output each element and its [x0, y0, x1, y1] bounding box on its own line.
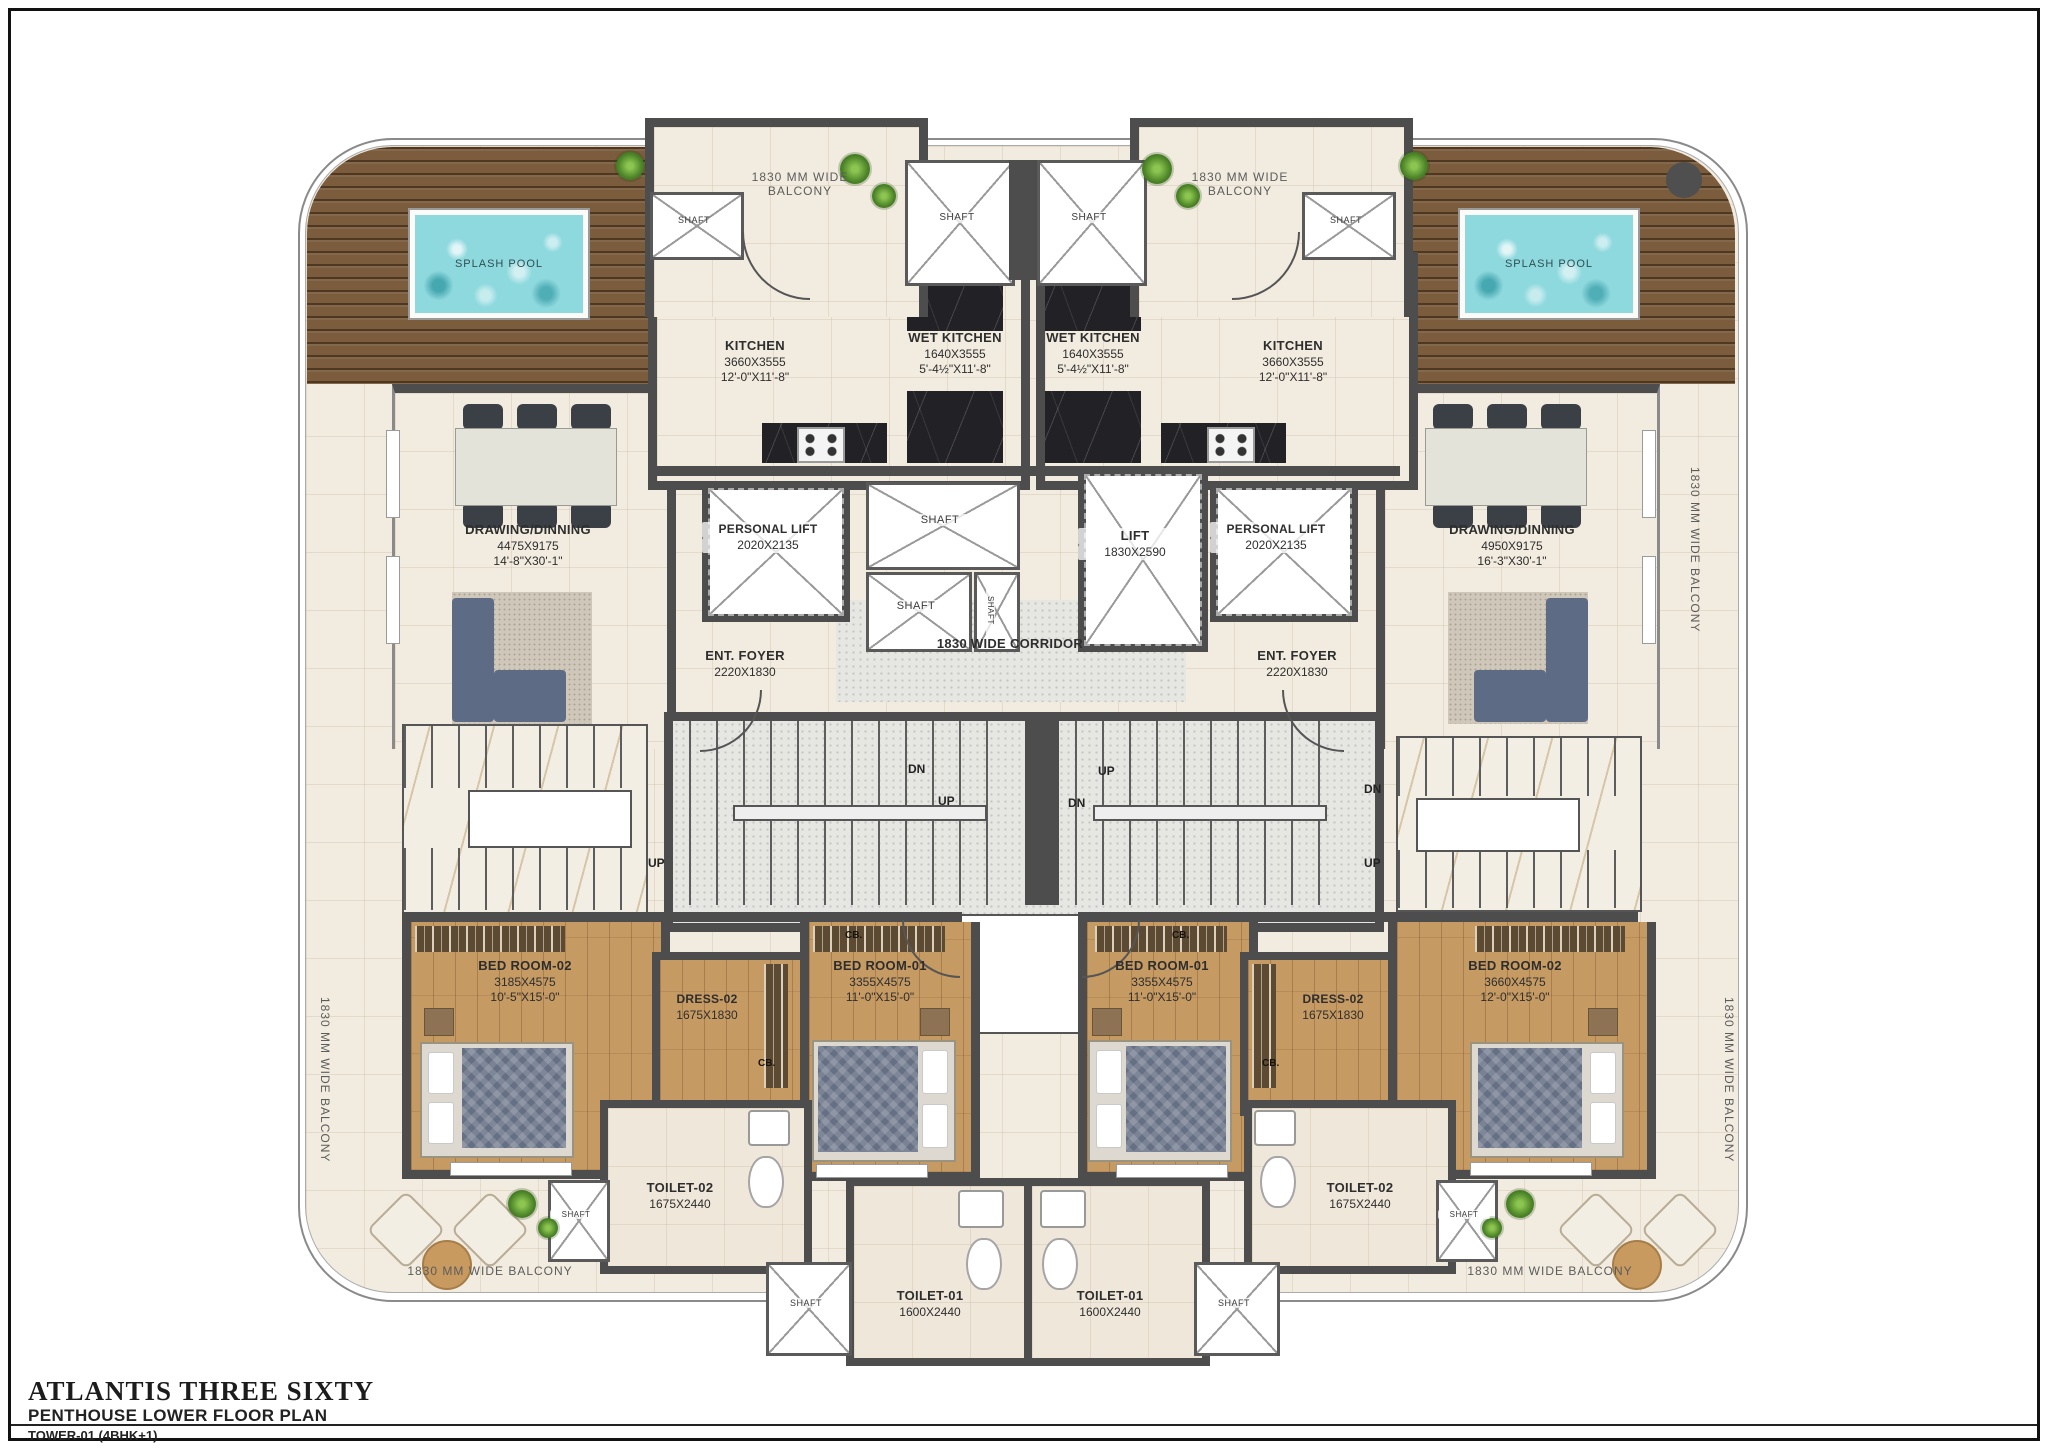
- shaft-side-right-label: SHAFT: [1438, 1210, 1490, 1219]
- nightstand: [1092, 1008, 1122, 1036]
- bed-double: [812, 1040, 956, 1162]
- kitchen-left-label: KITCHEN 3660X3555 12'-0"X11'-8": [660, 338, 850, 386]
- duvet: [818, 1046, 918, 1152]
- room-name: PERSONAL LIFT: [1210, 522, 1342, 538]
- shaft-core-top-right-label: SHAFT: [1047, 212, 1131, 223]
- room-name: TOILET-02: [1290, 1180, 1430, 1197]
- deck-drain-circle: [1666, 162, 1702, 198]
- room-dim-ft: 12'-0"X11'-8": [1198, 370, 1388, 386]
- sofa-left-horizontal: [494, 670, 566, 722]
- room-name: DRESS-02: [642, 992, 772, 1008]
- room-dim-mm: 2020X2135: [702, 538, 834, 554]
- window-bed1-right: [1116, 1164, 1228, 1178]
- title-divider: [11, 1424, 2037, 1426]
- stair-landing: [468, 790, 632, 848]
- bedroom-01-left-label: BED ROOM-01 3355X4575 11'-0"X15'-0": [790, 958, 970, 1006]
- wet-kitchen-right-label: WET KITCHEN 1640X3555 5'-4½"X11'-8": [1018, 330, 1168, 378]
- balcony-right-upper-label: 1830 MM WIDE BALCONY: [1672, 400, 1702, 700]
- room-name: BED ROOM-01: [1072, 958, 1252, 975]
- shaft-mid-left-a: [866, 482, 1020, 570]
- room-name: TOILET-01: [855, 1288, 1005, 1305]
- dining-chair: [1487, 404, 1527, 430]
- shaft-side-left: [548, 1180, 610, 1262]
- pillow: [428, 1052, 454, 1094]
- bedroom-02-left-label: BED ROOM-02 3185X4575 10'-5"X15'-0": [425, 958, 625, 1006]
- bedroom-01-right-label: BED ROOM-01 3355X4575 11'-0"X15'-0": [1072, 958, 1252, 1006]
- private-stair-right-dn: DN: [1364, 782, 1381, 796]
- wardrobe: [415, 926, 565, 952]
- wardrobe: [1475, 926, 1625, 952]
- splash-pool-left-label: SPLASH POOL: [455, 258, 543, 270]
- tower-name: TOWER-01 (4BHK+1): [28, 1428, 157, 1443]
- foyer-left-label: ENT. FOYER 2220X1830: [660, 648, 830, 680]
- room-dim-mm: 1600X2440: [1035, 1305, 1185, 1321]
- balcony-right-lower-label: 1830 MM WIDE BALCONY: [1706, 930, 1736, 1230]
- bed-double: [1470, 1042, 1624, 1158]
- room-name: WET KITCHEN: [880, 330, 1030, 347]
- dining-chair: [1433, 404, 1473, 430]
- washbasin-icon: [1040, 1190, 1086, 1228]
- shaft-mid-left-b-label: SHAFT: [876, 600, 956, 612]
- room-name: LIFT: [1078, 528, 1192, 545]
- dining-table-left: [455, 428, 617, 506]
- room-dim-mm: 1600X2440: [855, 1305, 1005, 1321]
- pillow: [922, 1050, 948, 1094]
- room-dim-mm: 4950X9175: [1412, 539, 1612, 555]
- dining-table-right: [1425, 428, 1587, 506]
- toilet-01-right-label: TOILET-01 1600X2440: [1035, 1288, 1185, 1320]
- toilet-01-left-label: TOILET-01 1600X2440: [855, 1288, 1005, 1320]
- shaft-core-top-left-label: SHAFT: [915, 212, 999, 223]
- duvet: [1478, 1048, 1582, 1148]
- room-dim-mm: 3660X3555: [660, 355, 850, 371]
- room-dim-mm: 1640X3555: [1018, 347, 1168, 363]
- balcony-bottom-left-label: 1830 MM WIDE BALCONY: [340, 1264, 640, 1278]
- drawing-right-label: DRAWING/DINNING 4950X9175 16'-3"X30'-1": [1412, 522, 1612, 570]
- room-dim-mm: 3355X4575: [1072, 975, 1252, 991]
- nightstand: [1588, 1008, 1618, 1036]
- bedroom-02-right-label: BED ROOM-02 3660X4575 12'-0"X15'-0": [1415, 958, 1615, 1006]
- toilet-02-right-label: TOILET-02 1675X2440: [1290, 1180, 1430, 1212]
- stair-hall: [664, 712, 1384, 932]
- project-title: ATLANTIS THREE SIXTY: [28, 1376, 374, 1407]
- room-dim-ft: 5'-4½"X11'-8": [880, 362, 1030, 378]
- pillow: [1096, 1104, 1122, 1148]
- washbasin-icon: [748, 1110, 790, 1146]
- room-name: KITCHEN: [1198, 338, 1388, 355]
- wc-icon: [966, 1238, 1002, 1290]
- plant-icon: [1482, 1218, 1502, 1238]
- room-dim-mm: 1830X2590: [1078, 545, 1192, 561]
- balcony-top-left-label: 1830 MM WIDE BALCONY: [725, 170, 875, 198]
- plant-icon: [872, 184, 896, 208]
- dining-chair: [571, 404, 611, 430]
- room-dim-ft: 5'-4½"X11'-8": [1018, 362, 1168, 378]
- kitchen-left-stove-icon: [797, 427, 845, 463]
- wet-kitchen-left-label: WET KITCHEN 1640X3555 5'-4½"X11'-8": [880, 330, 1030, 378]
- stair-center-wall: [1025, 721, 1059, 905]
- corridor-label: 1830 WIDE CORRIDOR: [860, 636, 1160, 653]
- shaft-bottom-right-label: SHAFT: [1198, 1298, 1270, 1308]
- stair-dn-right: DN: [1068, 796, 1085, 810]
- room-dim-mm: 3355X4575: [790, 975, 970, 991]
- private-stair-left-up: UP: [648, 856, 665, 870]
- nightstand: [920, 1008, 950, 1036]
- shaft-deck-right: [1302, 192, 1396, 260]
- room-dim-mm: 4475X9175: [428, 539, 628, 555]
- stair-rail-right: [1093, 805, 1327, 821]
- balcony-left-lower-label: 1830 MM WIDE BALCONY: [302, 930, 332, 1230]
- shaft-mid-left-c-label: SHAFT: [986, 584, 995, 636]
- room-dim-ft: 14'-8"X30'-1": [428, 554, 628, 570]
- wall-top-center: [1009, 160, 1037, 280]
- sofa-right-horizontal: [1474, 670, 1546, 722]
- plant-icon: [508, 1190, 536, 1218]
- bed-double: [1088, 1040, 1232, 1162]
- stair-landing: [1416, 798, 1580, 852]
- room-dim-mm: 1675X2440: [610, 1197, 750, 1213]
- room-name: PERSONAL LIFT: [702, 522, 834, 538]
- room-name: TOILET-02: [610, 1180, 750, 1197]
- shaft-core-top-right: [1037, 160, 1147, 286]
- wardrobe: [764, 964, 788, 1088]
- personal-lift-right-label: PERSONAL LIFT 2020X2135: [1210, 522, 1342, 553]
- stair-treads: [1398, 850, 1640, 908]
- pillow: [922, 1104, 948, 1148]
- wc-icon: [748, 1156, 784, 1208]
- room-name: KITCHEN: [660, 338, 850, 355]
- room-name: BED ROOM-02: [1415, 958, 1615, 975]
- wc-icon: [1042, 1238, 1078, 1290]
- cabinet-label-dress-left: CB.: [758, 1058, 775, 1069]
- room-dim-mm: 3660X4575: [1415, 975, 1615, 991]
- room-name: DRAWING/DINNING: [428, 522, 628, 539]
- room-name: TOILET-01: [1035, 1288, 1185, 1305]
- shaft-mid-left-a-label: SHAFT: [886, 514, 994, 526]
- dress-02-right-label: DRESS-02 1675X1830: [1268, 992, 1398, 1023]
- kitchen-right-stove-icon: [1207, 427, 1255, 463]
- wall-bed-right: [1078, 912, 1638, 922]
- room-dim-mm: 3660X3555: [1198, 355, 1388, 371]
- shaft-bottom-left-label: SHAFT: [770, 1298, 842, 1308]
- duvet: [1126, 1046, 1226, 1152]
- shaft-bottom-right-label-box: [1194, 1262, 1280, 1356]
- pillow: [1590, 1052, 1616, 1094]
- stair-treads: [404, 848, 646, 910]
- wardrobe: [1252, 964, 1276, 1088]
- room-name: WET KITCHEN: [1018, 330, 1168, 347]
- plant-icon: [1506, 1190, 1534, 1218]
- shaft-deck-left-label: SHAFT: [650, 215, 738, 225]
- room-dim-ft: 11'-0"X15'-0": [1072, 990, 1252, 1006]
- room-dim-mm: 1675X1830: [642, 1008, 772, 1024]
- room-dim-mm: 1675X1830: [1268, 1008, 1398, 1024]
- room-dim-mm: 2220X1830: [1212, 665, 1382, 681]
- duvet: [462, 1048, 566, 1148]
- window-bed2-right: [1470, 1162, 1592, 1176]
- room-dim-mm: 2020X2135: [1210, 538, 1342, 554]
- cabinet-label-dress-right: CB.: [1262, 1058, 1279, 1069]
- window-bed2-left: [450, 1162, 572, 1176]
- pillow: [428, 1102, 454, 1144]
- shaft-side-left-label: SHAFT: [550, 1210, 602, 1219]
- room-dim-mm: 1640X3555: [880, 347, 1030, 363]
- room-dim-mm: 3185X4575: [425, 975, 625, 991]
- lift-label: LIFT 1830X2590: [1078, 528, 1192, 560]
- cabinet-label-bed1-left: CB.: [845, 930, 862, 941]
- toilet-01-left: [846, 1178, 1032, 1366]
- sofa-right-vertical: [1546, 598, 1588, 722]
- shaft-bottom-left: [766, 1262, 852, 1356]
- plant-icon: [616, 152, 644, 180]
- dress-02-left-label: DRESS-02 1675X1830: [642, 992, 772, 1023]
- wall-core-top: [648, 466, 1400, 476]
- room-name: DRAWING/DINNING: [1412, 522, 1612, 539]
- dress-02-right: [1240, 952, 1404, 1116]
- personal-lift-left-label: PERSONAL LIFT 2020X2135: [702, 522, 834, 553]
- room-name: ENT. FOYER: [660, 648, 830, 665]
- balcony-top-right-label: 1830 MM WIDE BALCONY: [1165, 170, 1315, 198]
- window-left-1: [386, 430, 400, 518]
- private-stair-right-up: UP: [1364, 856, 1381, 870]
- washbasin-icon: [958, 1190, 1004, 1228]
- room-dim-ft: 16'-3"X30'-1": [1412, 554, 1612, 570]
- stair-dn-left: DN: [908, 762, 925, 776]
- floor-plan-canvas: SPLASH POOL SPLASH POOL 1830 MM WIDE BAL…: [0, 0, 2048, 1449]
- window-left-2: [386, 556, 400, 644]
- stair-up-right: UP: [1098, 764, 1115, 778]
- wet-kitchen-right-slab-bottom: [1045, 391, 1141, 463]
- room-name: ENT. FOYER: [1212, 648, 1382, 665]
- plant-icon: [538, 1218, 558, 1238]
- toilet-02-left-label: TOILET-02 1675X2440: [610, 1180, 750, 1212]
- stair-treads: [404, 726, 646, 788]
- stair-up-left: UP: [938, 794, 955, 808]
- shaft-core-top-left: [905, 160, 1015, 286]
- room-dim-ft: 11'-0"X15'-0": [790, 990, 970, 1006]
- shaft-deck-left: [650, 192, 744, 260]
- splash-pool-right-label: SPLASH POOL: [1505, 258, 1593, 270]
- nightstand: [424, 1008, 454, 1036]
- plan-name: PENTHOUSE LOWER FLOOR PLAN: [28, 1406, 327, 1426]
- sofa-left-vertical: [452, 598, 494, 722]
- drawing-left-label: DRAWING/DINNING 4475X9175 14'-8"X30'-1": [428, 522, 628, 570]
- splash-pool-right: SPLASH POOL: [1460, 210, 1638, 318]
- room-dim-ft: 12'-0"X15'-0": [1415, 990, 1615, 1006]
- plant-icon: [1400, 152, 1428, 180]
- room-dim-mm: 1675X2440: [1290, 1197, 1430, 1213]
- room-name: BED ROOM-01: [790, 958, 970, 975]
- pillow: [1590, 1102, 1616, 1144]
- stair-treads: [1398, 738, 1640, 796]
- kitchen-right-label: KITCHEN 3660X3555 12'-0"X11'-8": [1198, 338, 1388, 386]
- wet-kitchen-left-slab-bottom: [907, 391, 1003, 463]
- window-bed1-left: [816, 1164, 928, 1178]
- window-right-1: [1642, 430, 1656, 518]
- wall-bed-left: [402, 912, 962, 922]
- dining-chair: [463, 404, 503, 430]
- cabinet-label-bed1-right: CB.: [1172, 930, 1189, 941]
- window-right-2: [1642, 556, 1656, 644]
- dining-chair: [1541, 404, 1581, 430]
- pillow: [1096, 1050, 1122, 1094]
- room-name: BED ROOM-02: [425, 958, 625, 975]
- foyer-right-label: ENT. FOYER 2220X1830: [1212, 648, 1382, 680]
- bed-double: [420, 1042, 574, 1158]
- private-stair-right: [1396, 736, 1642, 912]
- splash-pool-left: SPLASH POOL: [410, 210, 588, 318]
- balcony-bottom-right-label: 1830 MM WIDE BALCONY: [1400, 1264, 1700, 1278]
- room-name: DRESS-02: [1268, 992, 1398, 1008]
- room-dim-ft: 10'-5"X15'-0": [425, 990, 625, 1006]
- private-stair-left: [402, 724, 648, 914]
- corridor-text: 1830 WIDE CORRIDOR: [860, 636, 1160, 653]
- washbasin-icon: [1254, 1110, 1296, 1146]
- dining-chair: [517, 404, 557, 430]
- room-dim-mm: 2220X1830: [660, 665, 830, 681]
- room-dim-ft: 12'-0"X11'-8": [660, 370, 850, 386]
- shaft-deck-right-label: SHAFT: [1302, 215, 1390, 225]
